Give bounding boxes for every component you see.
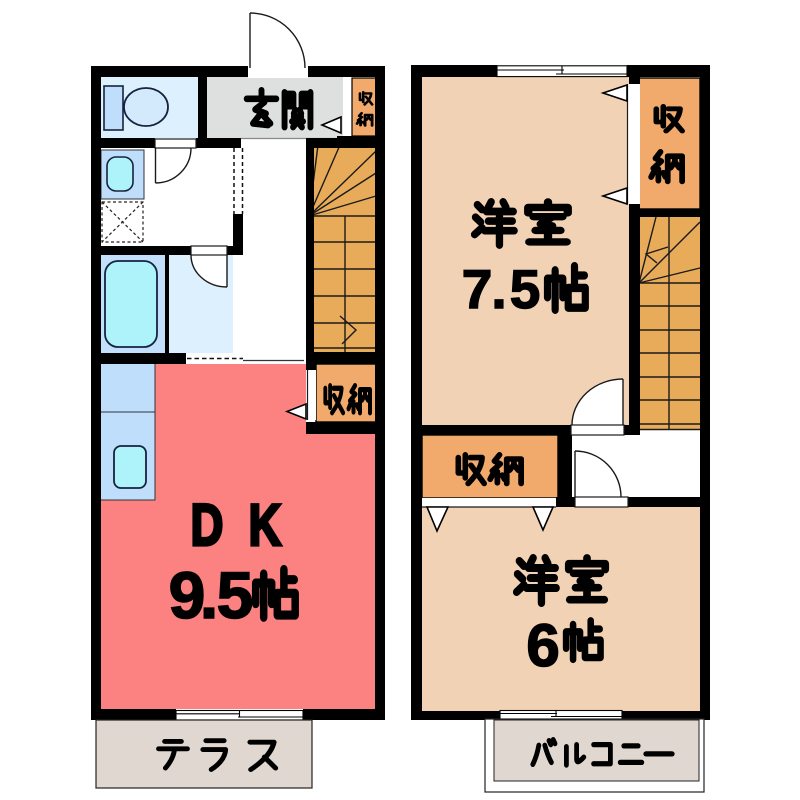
- svg-text:7: 7: [462, 258, 493, 320]
- svg-text:.: .: [200, 558, 218, 632]
- svg-text:D: D: [191, 494, 224, 559]
- svg-text:K: K: [249, 494, 282, 559]
- svg-text:6: 6: [526, 612, 559, 679]
- svg-text:5: 5: [510, 258, 541, 320]
- svg-text:.: .: [491, 258, 506, 320]
- svg-text:5: 5: [217, 558, 254, 632]
